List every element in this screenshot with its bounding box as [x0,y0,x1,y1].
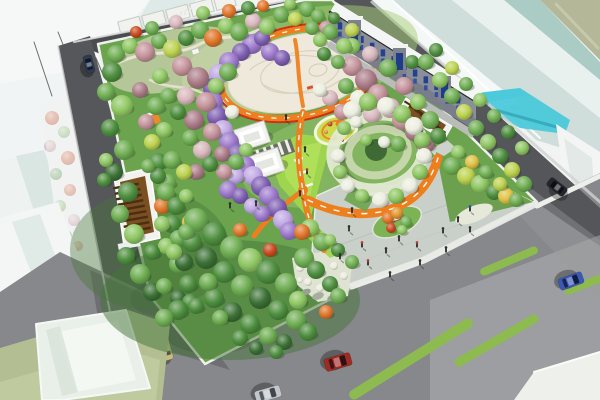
aerial-park-rendering [0,0,600,400]
rendering-canvas [0,0,600,400]
tower-2-panel [396,53,403,70]
